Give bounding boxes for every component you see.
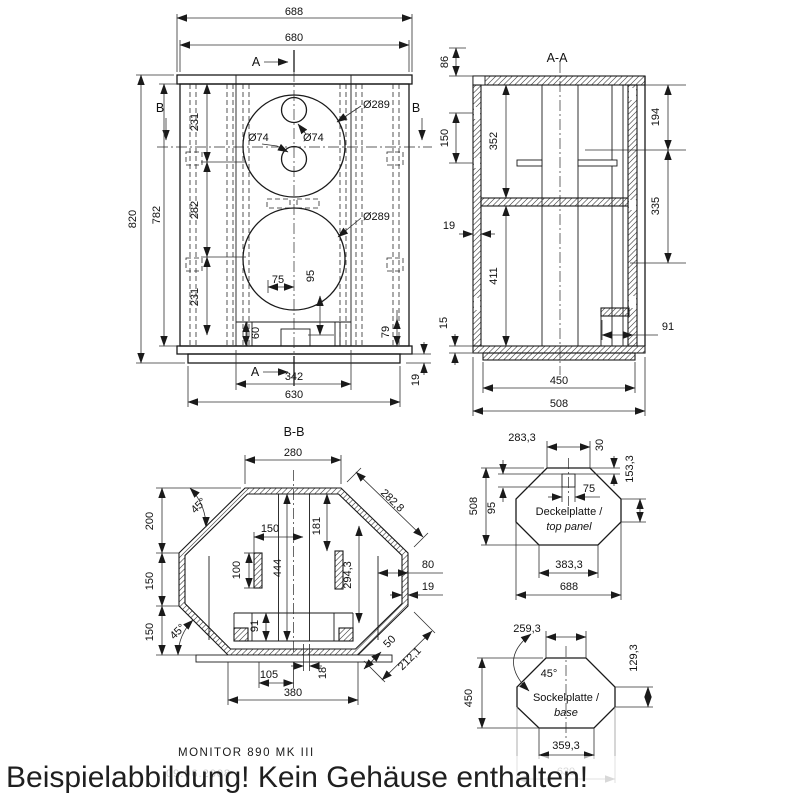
- dim-overall-depth: 508: [550, 398, 568, 410]
- aa-terminal-shelf: [601, 308, 629, 316]
- dim-port-left: Ø74: [248, 132, 269, 144]
- dim-tp-front-edge: 283,3: [508, 432, 536, 444]
- dim-plinth-depth: 450: [550, 375, 568, 387]
- dim-recess-height: 79: [380, 326, 392, 338]
- aa-mid-shelf: [481, 198, 628, 206]
- dim-front-width: 280: [284, 447, 302, 459]
- dim-woofer-upper: Ø289: [363, 99, 390, 111]
- dim-bottom-angle: 45°: [168, 622, 188, 642]
- dim-bp-corner-angle: 45°: [541, 668, 558, 680]
- top-cap: [177, 75, 412, 84]
- dim-base-step: 15: [438, 317, 450, 329]
- drawing-page: A A B B: [0, 0, 800, 800]
- top-panel-label-en: top panel: [546, 521, 592, 533]
- top-panel-label-de: Deckelplatte /: [536, 506, 604, 518]
- section-b-mark-left: B: [156, 101, 164, 115]
- dim-side-inner: 80: [422, 559, 434, 571]
- dim-tp-hole-inset: 30: [594, 439, 606, 451]
- terminal-cutout: [281, 329, 310, 346]
- dim-front-section: 200: [144, 512, 156, 530]
- dim-port-offset-h: 75: [272, 274, 284, 286]
- dim-brace-length: 100: [231, 561, 243, 579]
- dim-tp-side-edge: 153,3: [624, 455, 636, 483]
- dim-side-section: 150: [144, 572, 156, 590]
- section-aa-view: A-A: [438, 48, 686, 416]
- base-board: [177, 346, 412, 354]
- dim-wall-thickness-aa: 19: [443, 220, 455, 232]
- aa-dimension-lines: [449, 48, 686, 416]
- dim-upper-chamber: 352: [488, 132, 500, 150]
- dim-tp-overall-width: 688: [560, 581, 578, 593]
- aa-top-cap: [473, 76, 645, 85]
- section-a-mark-top: A: [252, 55, 261, 69]
- dim-wall-thickness-bb: 19: [422, 581, 434, 593]
- dim-bp-rear-edge: 359,3: [552, 740, 580, 752]
- dim-lower-section: 231: [189, 288, 201, 306]
- dim-facet-outer: 212,1: [396, 645, 424, 673]
- dim-bp-depth: 450: [463, 689, 475, 707]
- dim-bp-side-edge: 129,3: [628, 644, 640, 672]
- bb-brace-left: [254, 553, 262, 588]
- section-bb-view: B-B: [144, 425, 443, 705]
- watermark-overlay: Beispielabbildung! Kein Gehäuse enthalte…: [0, 756, 800, 800]
- dim-bp-front-edge: 259,3: [513, 623, 541, 635]
- dim-brace-height: 60: [250, 327, 262, 339]
- dim-terminal-width: 91: [662, 321, 674, 333]
- dim-rear-brace: 294,3: [342, 561, 354, 589]
- dim-tp-depth: 508: [468, 497, 480, 515]
- aa-plinth: [483, 353, 635, 360]
- aa-base: [473, 346, 645, 353]
- dim-rear-section: 150: [144, 623, 156, 641]
- base-panel-label-de: Sockelplatte /: [533, 692, 600, 704]
- dim-upper-section: 231: [189, 113, 201, 131]
- bb-base-overhang: [196, 655, 392, 662]
- dim-plinth-height: 19: [410, 374, 422, 386]
- dim-body-width: 680: [285, 32, 303, 44]
- dim-front-height: 782: [151, 206, 163, 224]
- section-a-mark-bottom: A: [251, 365, 260, 379]
- section-bb-title: B-B: [284, 425, 305, 439]
- dim-facet-inner: 50: [381, 633, 398, 650]
- dim-brace-offset: 150: [261, 523, 279, 535]
- dim-duct-height: 91: [249, 620, 261, 632]
- section-b-mark-right: B: [412, 101, 420, 115]
- dim-tp-hole-width: 75: [583, 483, 595, 495]
- dim-tp-hole-height: 95: [486, 502, 498, 514]
- dim-right-mid: 335: [650, 197, 662, 215]
- dim-tp-rear-edge: 383,3: [555, 559, 583, 571]
- dim-center-brace: 444: [272, 559, 284, 577]
- dim-right-upper: 194: [650, 108, 662, 126]
- base-panel-label-en: base: [554, 707, 578, 719]
- dim-baffle-width: 342: [285, 371, 303, 383]
- dim-top-angle: 45°: [189, 496, 209, 516]
- dim-plinth-width: 630: [285, 389, 303, 401]
- dim-mid-section: 282: [189, 201, 201, 219]
- watermark-text: Beispielabbildung! Kein Gehäuse enthalte…: [0, 761, 588, 795]
- dim-brace-depth: 181: [311, 517, 323, 535]
- dim-overall-height: 820: [127, 210, 139, 228]
- dim-facet-length: 282,8: [378, 487, 406, 515]
- section-aa-title: A-A: [547, 51, 569, 65]
- dim-woofer-lower: Ø289: [363, 211, 390, 223]
- dim-lower-chamber: 411: [488, 267, 500, 285]
- dim-overall-width: 688: [285, 6, 303, 18]
- technical-drawing: A A B B: [0, 0, 800, 800]
- dim-cap-overhang: 86: [439, 56, 451, 68]
- dim-side-offset: 150: [439, 129, 451, 147]
- dim-port-right: Ø74: [303, 132, 324, 144]
- dim-port-offset-v: 95: [305, 270, 317, 282]
- dim-duct-offset: 105: [260, 669, 278, 681]
- front-view: A A B B: [127, 6, 432, 407]
- dim-rear-width: 380: [284, 687, 302, 699]
- dim-board-thickness: 18: [317, 667, 329, 679]
- top-panel-view: 283,3 30 153,3 508 95 75 Deckelplatte / …: [468, 432, 646, 600]
